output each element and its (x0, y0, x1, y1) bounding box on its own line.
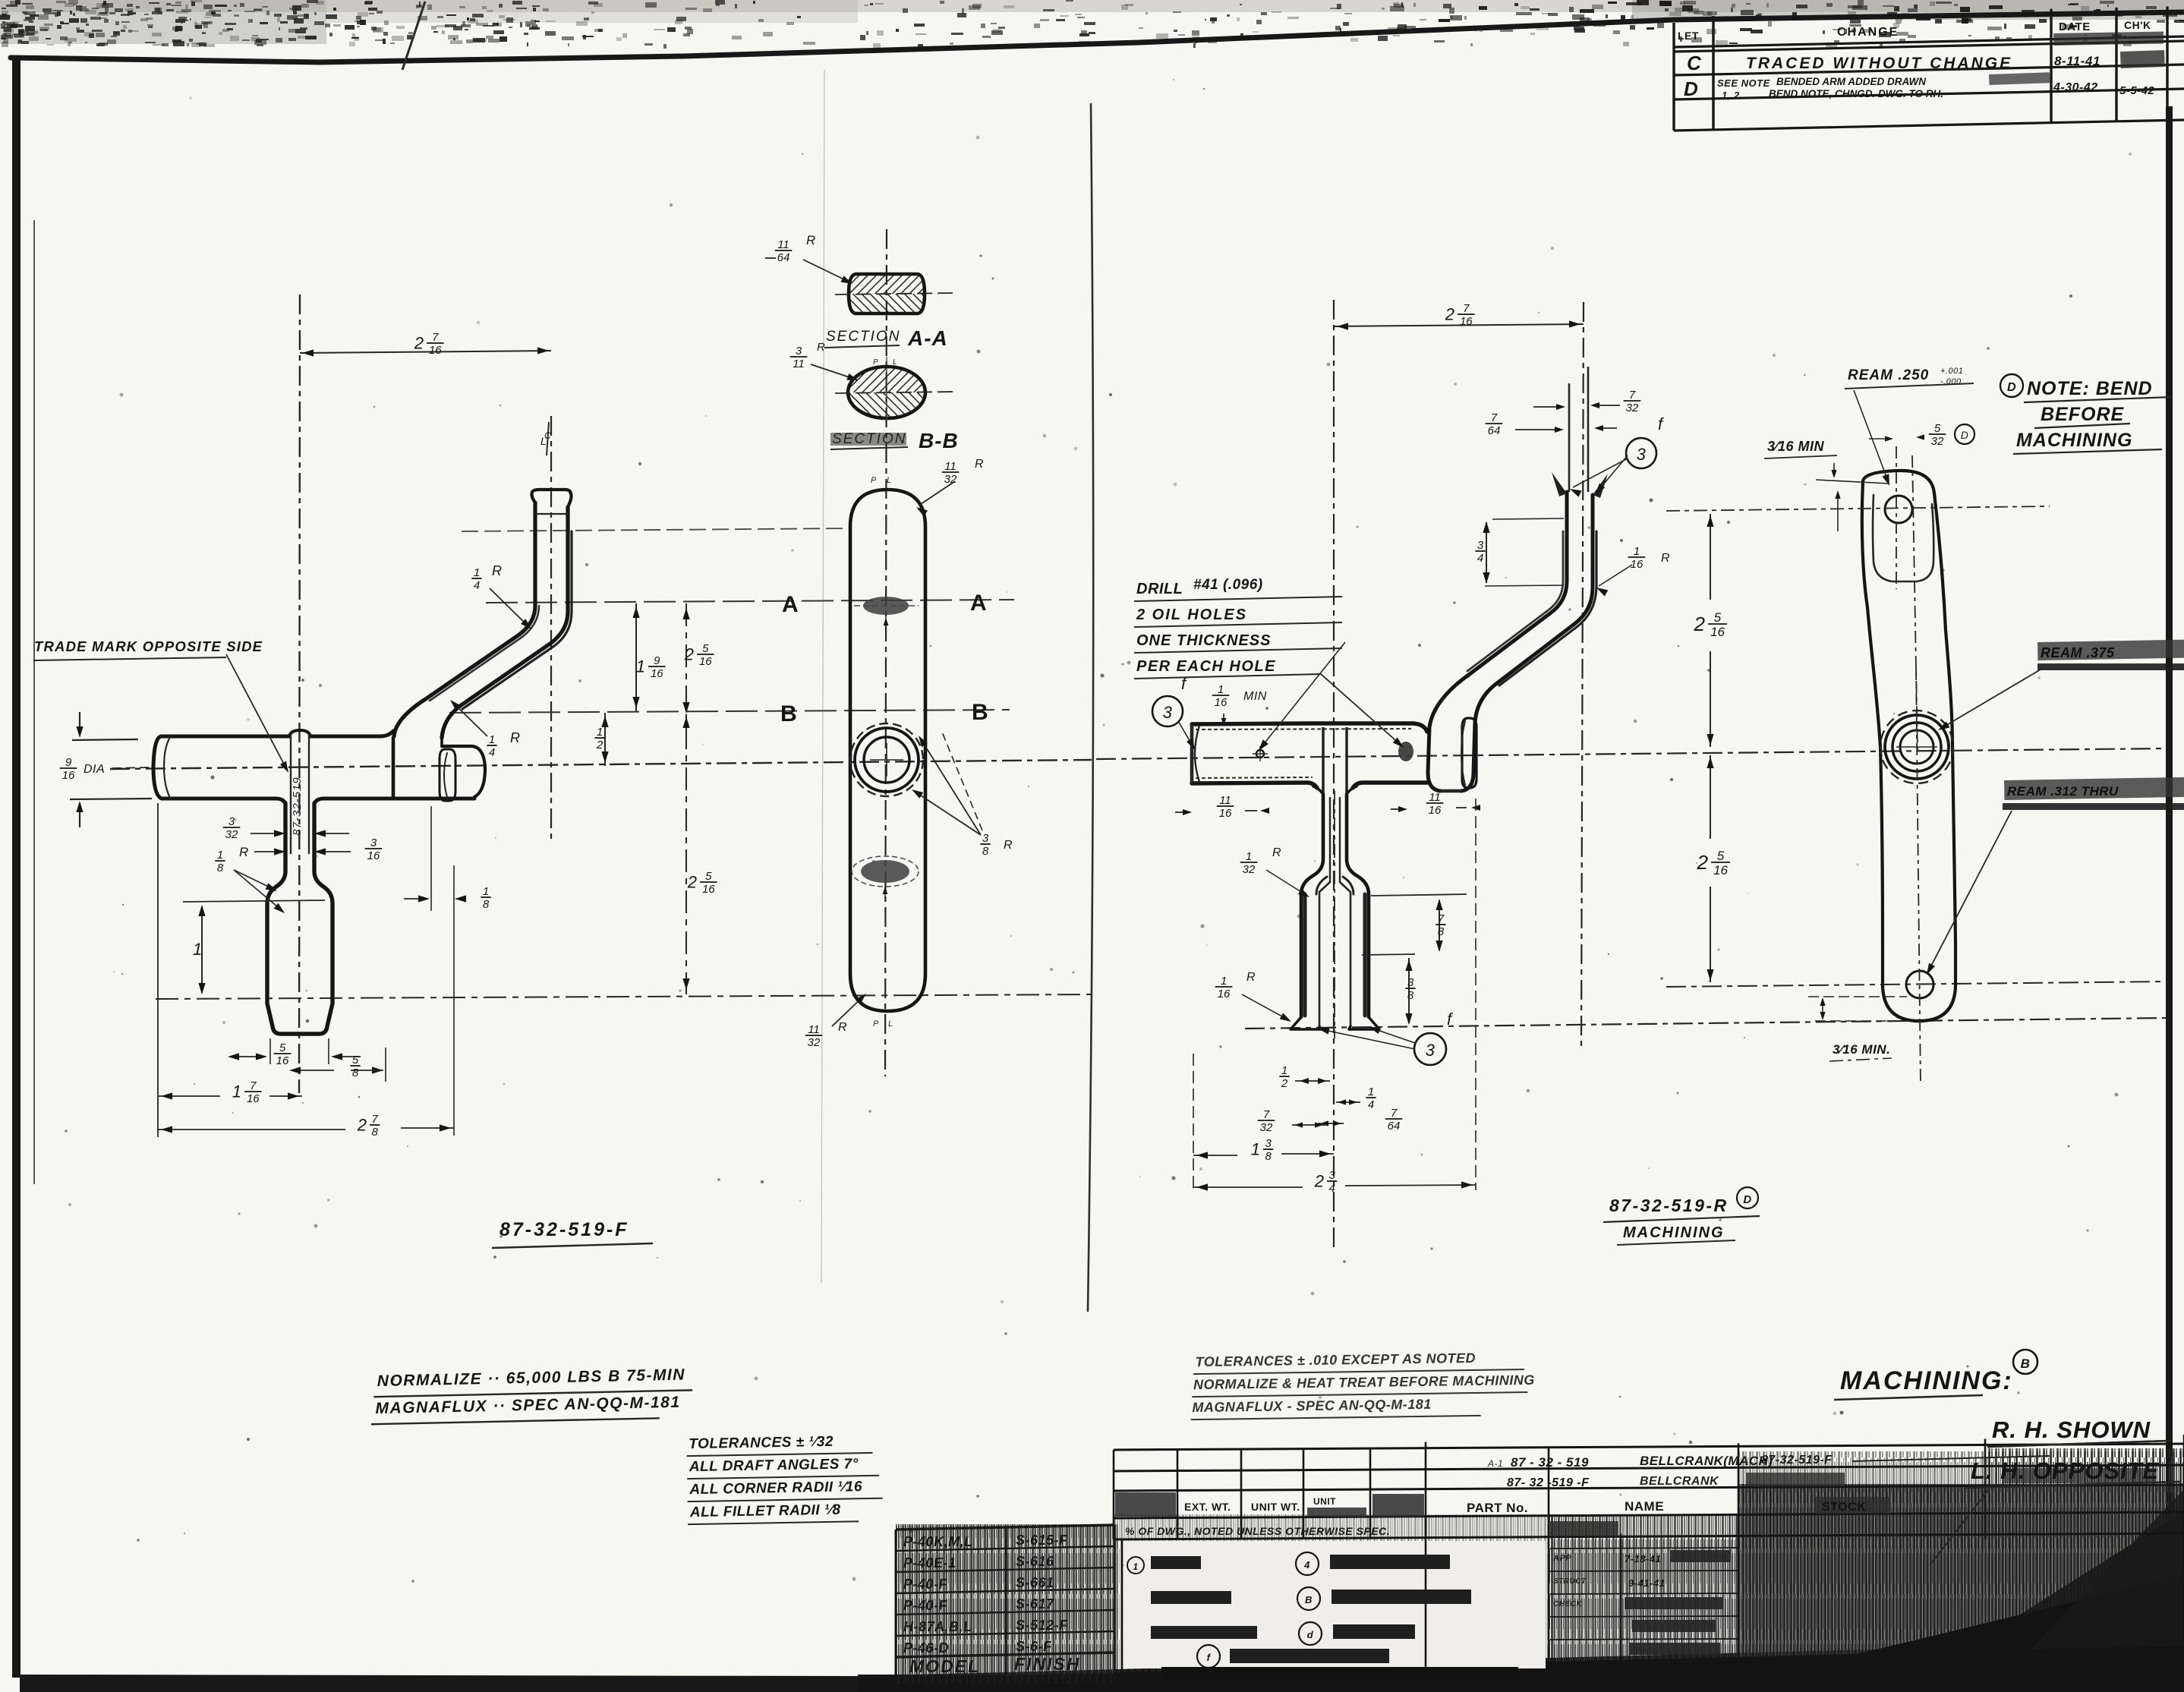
svg-text:D: D (1961, 429, 1969, 441)
svg-text:32: 32 (1626, 402, 1639, 414)
svg-text:9-41-41: 9-41-41 (1628, 1577, 1665, 1589)
svg-text:1: 1 (217, 849, 223, 862)
svg-text:8: 8 (483, 898, 490, 911)
svg-text:2: 2 (1314, 1172, 1324, 1191)
svg-text:16: 16 (1219, 807, 1232, 820)
svg-text:3: 3 (1426, 1041, 1436, 1060)
svg-text:SEE NOTE: SEE NOTE (1717, 77, 1770, 89)
svg-text:R. H. SHOWN: R. H. SHOWN (1992, 1416, 2151, 1443)
svg-text:2: 2 (414, 334, 424, 353)
svg-text:UNIT: UNIT (1313, 1496, 1336, 1507)
svg-text:A: A (970, 591, 987, 616)
svg-text:EXT. WT.: EXT. WT. (1184, 1501, 1231, 1513)
svg-text:R: R (975, 458, 984, 471)
svg-text:11: 11 (777, 238, 789, 251)
svg-text:C: C (1687, 52, 1702, 74)
svg-text:R: R (239, 845, 249, 859)
svg-text:32: 32 (225, 828, 238, 841)
svg-text:7: 7 (432, 331, 439, 344)
svg-text:BELLCRANK(MACH): BELLCRANK(MACH) (1640, 1454, 1773, 1468)
svg-text:TRADE MARK OPPOSITE SIDE: TRADE MARK OPPOSITE SIDE (34, 638, 263, 654)
svg-text:8: 8 (352, 1067, 359, 1079)
svg-text:D: D (2007, 381, 2016, 394)
svg-text:7: 7 (1491, 411, 1498, 424)
svg-text:REAM .250: REAM .250 (1848, 367, 1929, 383)
svg-text:16: 16 (1713, 863, 1728, 878)
svg-text:7: 7 (1438, 912, 1445, 925)
svg-text:4: 4 (474, 579, 480, 592)
svg-text:7: 7 (371, 1113, 378, 1126)
svg-text:16: 16 (702, 883, 715, 896)
svg-text:L: L (888, 1019, 893, 1029)
svg-text:11: 11 (1219, 794, 1231, 807)
svg-text:1: 1 (597, 726, 603, 739)
svg-text:87 - 32 - 519: 87 - 32 - 519 (1511, 1455, 1589, 1470)
svg-text:5: 5 (702, 642, 709, 655)
svg-text:11: 11 (808, 1023, 820, 1036)
svg-text:1: 1 (483, 885, 489, 898)
svg-text:2: 2 (1445, 305, 1454, 324)
svg-text:16: 16 (429, 344, 442, 357)
svg-text:4: 4 (1328, 1182, 1335, 1195)
svg-text:8: 8 (1265, 1150, 1272, 1163)
svg-text:DATE: DATE (2059, 20, 2091, 33)
svg-text:CHECK: CHECK (1553, 1600, 1582, 1609)
svg-text:87-32-519-R: 87-32-519-R (1609, 1196, 1729, 1215)
svg-text:16: 16 (247, 1092, 260, 1105)
svg-text:8: 8 (982, 845, 989, 858)
svg-text:1: 1 (1133, 1561, 1138, 1572)
svg-text:1: 1 (636, 657, 645, 676)
svg-text:D: D (1743, 1193, 1751, 1206)
svg-text:2: 2 (596, 739, 604, 751)
svg-text:87-32-519-F: 87-32-519-F (1761, 1454, 1833, 1467)
svg-text:#41 (.096): #41 (.096) (1193, 577, 1263, 593)
svg-text:ALL CORNER RADII ¹⁄16: ALL CORNER RADII ¹⁄16 (689, 1479, 862, 1498)
svg-text:L: L (887, 476, 892, 485)
svg-text:64: 64 (1388, 1120, 1401, 1133)
svg-text:16: 16 (62, 769, 75, 782)
svg-text:9: 9 (65, 756, 72, 769)
svg-text:1: 1 (474, 566, 480, 579)
svg-text:3: 3 (228, 815, 235, 828)
svg-text:8-11-41: 8-11-41 (2054, 54, 2100, 68)
svg-text:3: 3 (370, 837, 377, 849)
svg-text:MIN: MIN (1243, 690, 1267, 703)
svg-text:B: B (972, 700, 988, 725)
svg-text:5: 5 (352, 1054, 359, 1067)
svg-text:PER EACH HOLE: PER EACH HOLE (1136, 658, 1276, 675)
svg-text:32: 32 (1243, 863, 1256, 876)
svg-text:CH'K: CH'K (2124, 19, 2151, 31)
svg-text:32: 32 (1931, 435, 1944, 448)
svg-text:3: 3 (982, 832, 989, 845)
svg-text:8: 8 (217, 862, 224, 874)
svg-text:11: 11 (793, 358, 805, 370)
svg-text:L: L (893, 358, 897, 367)
svg-text:3: 3 (1407, 976, 1414, 989)
svg-text:LET: LET (1678, 30, 1699, 42)
svg-text:B-B: B-B (919, 429, 959, 452)
svg-text:BENDED ARM ADDED DRAWN: BENDED ARM ADDED DRAWN (1776, 76, 1926, 87)
svg-text:DIA: DIA (84, 763, 105, 776)
svg-text:87- 32 -519 -F: 87- 32 -519 -F (1507, 1476, 1590, 1489)
svg-text:+.001: +.001 (1940, 367, 1963, 376)
svg-text:2: 2 (684, 645, 694, 664)
svg-text:ALL DRAFT ANGLES 7°: ALL DRAFT ANGLES 7° (689, 1456, 859, 1475)
svg-text:87-32-519: 87-32-519 (291, 777, 304, 835)
svg-text:MACHINING: MACHINING (1623, 1224, 1725, 1241)
svg-text:MACHINING:: MACHINING: (1840, 1366, 2013, 1395)
svg-text:7: 7 (1391, 1107, 1398, 1120)
svg-text:7: 7 (1263, 1108, 1270, 1121)
svg-text:REAM .312 THRU: REAM .312 THRU (2007, 784, 2119, 799)
svg-text:8: 8 (1438, 925, 1445, 938)
svg-text:R: R (838, 1021, 847, 1034)
svg-text:16: 16 (1429, 804, 1442, 817)
svg-text:P: P (871, 476, 877, 485)
svg-text:R: R (1272, 846, 1281, 859)
svg-text:87-32-519-F: 87-32-519-F (500, 1219, 629, 1240)
svg-text:BELLCRANK: BELLCRANK (1640, 1475, 1719, 1488)
svg-text:5: 5 (1717, 849, 1725, 863)
svg-text:1: 1 (1368, 1085, 1374, 1098)
svg-text:1: 1 (1218, 683, 1224, 696)
svg-text:TOLERANCES ± ¹⁄32: TOLERANCES ± ¹⁄32 (689, 1434, 834, 1452)
svg-text:R: R (1004, 839, 1013, 852)
svg-text:2 OIL HOLES: 2 OIL HOLES (1136, 607, 1247, 623)
svg-text:5: 5 (279, 1041, 286, 1054)
svg-text:% OF DWG., NOTED UNLESS OTHE: % OF DWG., NOTED UNLESS OTHERWISE SPEC. (1125, 1525, 1390, 1537)
svg-text:MACHINING: MACHINING (2016, 430, 2132, 451)
svg-text:16: 16 (1631, 558, 1644, 571)
svg-text:5: 5 (705, 870, 712, 883)
svg-text:BEFORE: BEFORE (2041, 404, 2125, 425)
svg-text:1: 1 (1221, 975, 1227, 988)
svg-text:ALL FILLET RADII ¹⁄8: ALL FILLET RADII ¹⁄8 (689, 1502, 841, 1520)
svg-text:5-5-42: 5-5-42 (2119, 84, 2155, 97)
svg-text:3: 3 (1477, 539, 1484, 552)
svg-text:1: 1 (1251, 1140, 1260, 1159)
svg-text:P: P (873, 358, 878, 367)
svg-text:4: 4 (1303, 1559, 1310, 1571)
svg-text:STOCK: STOCK (1822, 1501, 1866, 1514)
svg-text:BEND NOTE, CHNGD. DWG. TO RH.: BEND NOTE, CHNGD. DWG. TO RH. (1769, 88, 1943, 99)
svg-text:R: R (492, 563, 503, 578)
svg-text:L. H. OPPOSITE: L. H. OPPOSITE (1971, 1457, 2160, 1484)
svg-text:4: 4 (1477, 552, 1483, 565)
svg-text:A-A: A-A (907, 326, 948, 350)
svg-text:R: R (1661, 552, 1670, 565)
svg-text:P: P (873, 1019, 879, 1029)
svg-text:3⁄16 MIN.: 3⁄16 MIN. (1833, 1042, 1890, 1057)
svg-text:16: 16 (651, 667, 663, 680)
svg-text:3⁄16 MIN: 3⁄16 MIN (1767, 439, 1825, 454)
svg-text:4: 4 (489, 746, 495, 759)
svg-text:CHANGE: CHANGE (1837, 26, 1899, 39)
svg-text:7: 7 (250, 1079, 257, 1092)
svg-text:32: 32 (808, 1036, 821, 1049)
svg-text:64: 64 (1488, 424, 1501, 437)
svg-text:APP: APP (1552, 1554, 1571, 1563)
svg-text:2: 2 (357, 1116, 367, 1135)
svg-text:REAM .375: REAM .375 (2041, 645, 2115, 660)
svg-text:8: 8 (1407, 989, 1414, 1002)
svg-text:32: 32 (1260, 1121, 1273, 1134)
svg-text:7: 7 (1629, 389, 1636, 402)
svg-text:9: 9 (654, 654, 660, 667)
svg-text:4: 4 (1368, 1098, 1374, 1111)
svg-text:11: 11 (944, 460, 956, 473)
svg-text:3: 3 (796, 345, 802, 358)
svg-text:A-1: A-1 (1487, 1458, 1503, 1469)
svg-text:3: 3 (1637, 445, 1647, 464)
svg-text:5: 5 (1934, 422, 1941, 435)
svg-text:8: 8 (371, 1126, 378, 1139)
svg-text:R: R (806, 233, 816, 247)
svg-text:16: 16 (276, 1054, 289, 1067)
svg-text:R: R (817, 341, 825, 354)
svg-text:16: 16 (699, 655, 712, 668)
svg-text:UNIT WT.: UNIT WT. (1251, 1501, 1300, 1513)
svg-text:STRUCT: STRUCT (1553, 1577, 1587, 1586)
svg-text:7: 7 (1463, 302, 1470, 315)
svg-text:3: 3 (1163, 703, 1173, 722)
svg-text:ONE THICKNESS: ONE THICKNESS (1136, 632, 1271, 649)
svg-text:B: B (1305, 1594, 1313, 1605)
svg-text:DRILL: DRILL (1136, 581, 1183, 597)
svg-text:16: 16 (367, 849, 380, 862)
svg-text:1: 1 (1634, 545, 1640, 558)
svg-text:11: 11 (1429, 791, 1441, 804)
svg-text:4-30-42: 4-30-42 (2053, 81, 2098, 94)
svg-text:R: R (1246, 971, 1256, 984)
svg-text:A: A (782, 592, 799, 617)
svg-text:D: D (1684, 77, 1698, 100)
svg-text:5: 5 (1714, 610, 1722, 625)
svg-text:1, 2: 1, 2 (1722, 90, 1740, 101)
svg-text:2: 2 (1281, 1077, 1288, 1090)
svg-text:64: 64 (777, 251, 790, 264)
svg-text:R: R (510, 730, 521, 745)
svg-text:16: 16 (1460, 315, 1473, 328)
svg-text:16: 16 (1218, 988, 1231, 1000)
svg-text:16: 16 (1710, 625, 1725, 639)
svg-text:1: 1 (1281, 1064, 1287, 1077)
svg-text:7-18-41: 7-18-41 (1625, 1553, 1661, 1564)
svg-text:B: B (780, 701, 797, 726)
svg-text:1: 1 (193, 940, 203, 959)
svg-text:1: 1 (1246, 850, 1252, 863)
svg-text:16: 16 (1215, 696, 1228, 709)
svg-text:1: 1 (489, 733, 495, 746)
svg-text:TRACED WITHOUT CHANGE: TRACED WITHOUT CHANGE (1746, 55, 2012, 72)
svg-text:PART No.: PART No. (1467, 1501, 1528, 1515)
svg-text:2: 2 (1697, 851, 1709, 874)
svg-text:NAME: NAME (1625, 1499, 1664, 1514)
svg-text:2: 2 (1694, 613, 1706, 635)
svg-text:C: C (544, 430, 551, 441)
svg-text:1: 1 (232, 1082, 241, 1101)
svg-text:SECTION: SECTION (826, 329, 900, 345)
svg-text:B: B (2021, 1356, 2031, 1371)
svg-text:2: 2 (687, 873, 697, 892)
svg-text:3: 3 (1265, 1137, 1272, 1150)
svg-text:NOTE: BEND: NOTE: BEND (2027, 378, 2153, 399)
svg-text:3: 3 (1328, 1169, 1335, 1182)
svg-text:d: d (1307, 1629, 1314, 1640)
